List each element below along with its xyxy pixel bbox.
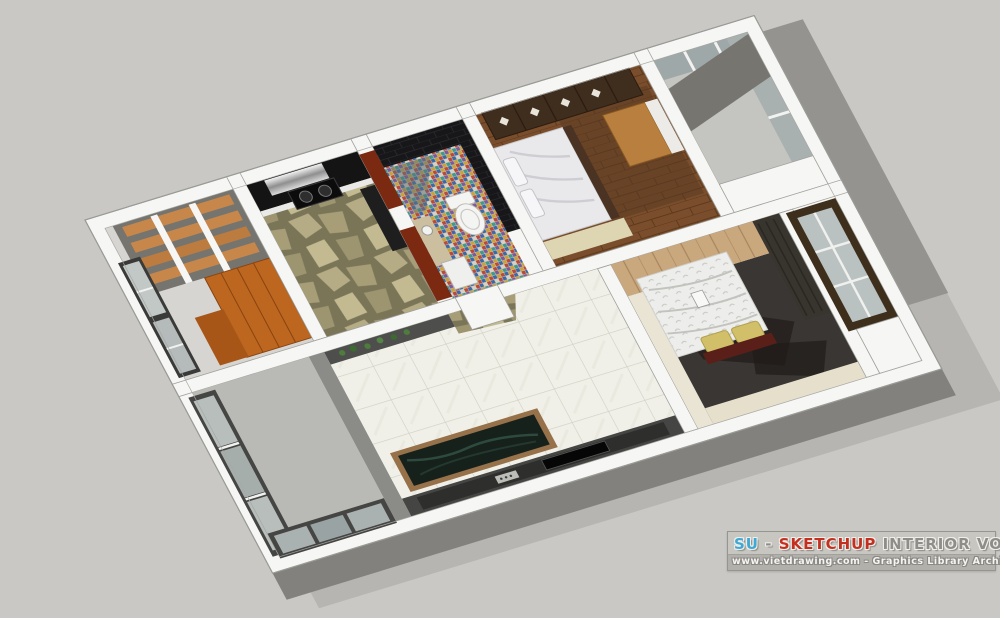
banner-title: SU - SKETCHUP INTERIOR VOL.3 <box>728 532 995 554</box>
floorplan-render <box>0 0 1000 618</box>
banner-brand-sketchup: SKETCHUP <box>779 535 877 553</box>
watermark-banner: SU - SKETCHUP INTERIOR VOL.3 www.vietdra… <box>727 531 996 571</box>
banner-brand-su: SU <box>734 535 759 553</box>
banner-dash: - <box>765 535 772 553</box>
sketchup-render-screenshot: SU - SKETCHUP INTERIOR VOL.3 www.vietdra… <box>0 0 1000 618</box>
banner-volume-label: INTERIOR VOL.3 <box>883 535 1000 553</box>
banner-website: www.vietdrawing.com - Graphics Library A… <box>728 554 995 570</box>
